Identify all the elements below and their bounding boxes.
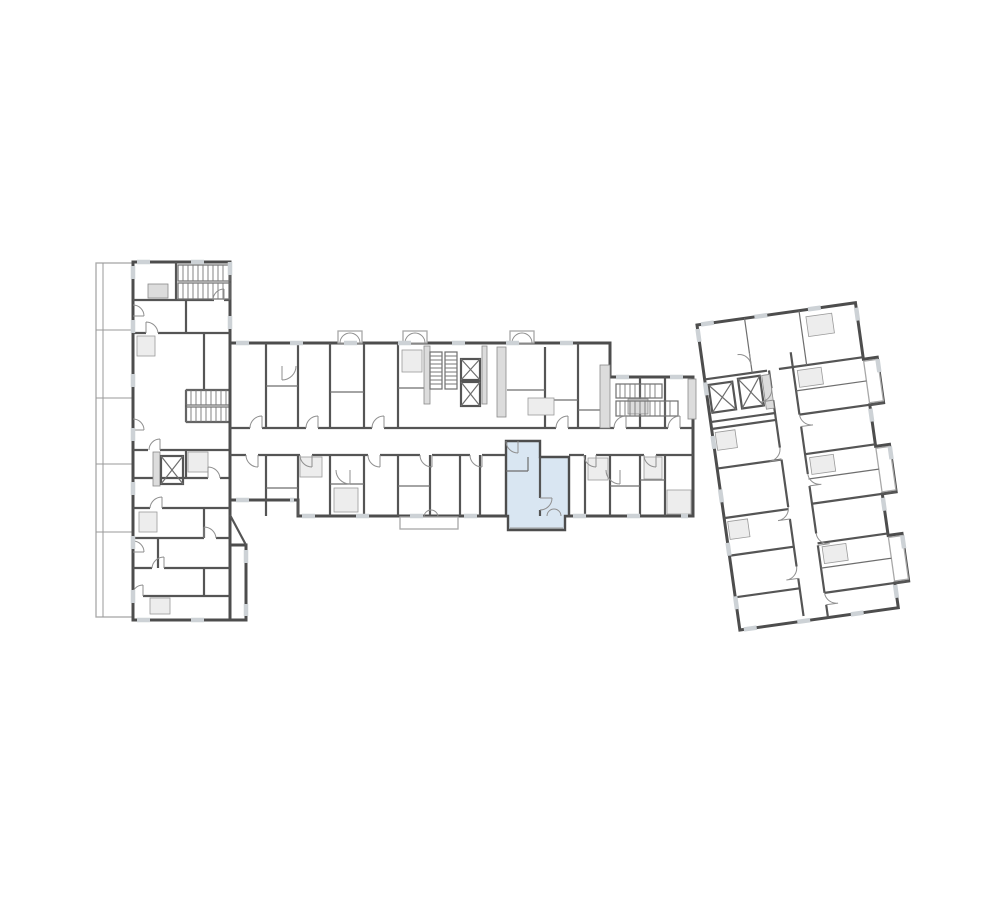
bathroom-hatch — [644, 457, 662, 479]
bathroom-hatch — [137, 336, 155, 356]
bathroom-hatch — [402, 350, 422, 372]
bathroom-hatch — [728, 519, 750, 540]
bathroom-hatch — [715, 430, 737, 451]
bathroom-hatch — [588, 458, 608, 480]
shaft-hatch — [148, 284, 168, 298]
central-bar — [230, 331, 696, 529]
floor-plan-svg — [0, 0, 1000, 900]
entry-porches — [338, 331, 534, 343]
bathroom-hatch — [797, 367, 823, 387]
bathroom-hatch — [139, 512, 157, 532]
bathroom-hatch — [188, 452, 208, 472]
bathroom-hatch — [528, 398, 554, 415]
bathroom-hatch — [667, 490, 691, 514]
floor-plan-page — [0, 0, 1000, 900]
left-balcony-strip — [96, 263, 133, 617]
right-wing — [697, 301, 912, 630]
bathroom-hatch — [806, 313, 835, 336]
bathroom-hatch — [150, 598, 170, 614]
bathroom-hatch — [822, 543, 848, 563]
bathroom-hatch — [334, 488, 358, 512]
bathroom-hatch — [810, 454, 836, 474]
